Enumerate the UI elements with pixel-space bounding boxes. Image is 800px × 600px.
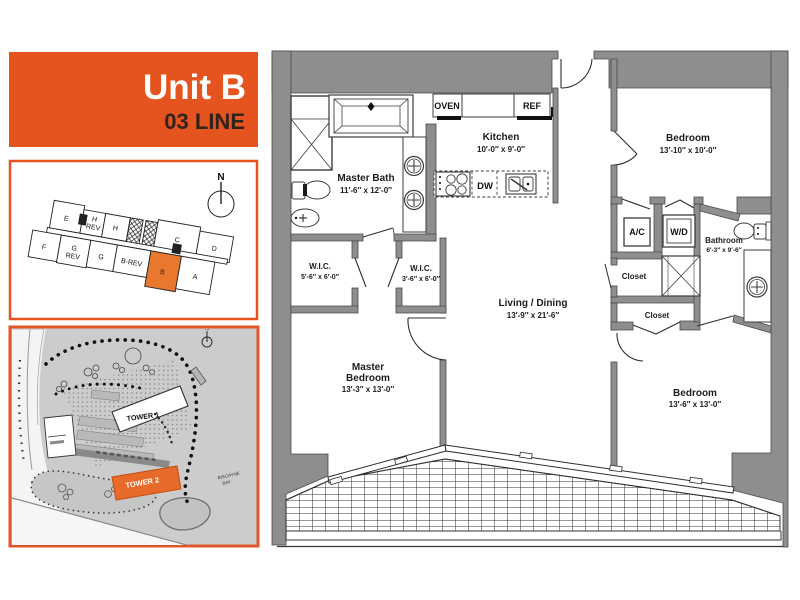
svg-text:Kitchen: Kitchen bbox=[483, 132, 520, 143]
svg-text:Unit B: Unit B bbox=[143, 68, 246, 107]
svg-text:W/D: W/D bbox=[670, 227, 688, 237]
svg-text:Master: Master bbox=[352, 362, 384, 373]
svg-text:Closet: Closet bbox=[645, 311, 670, 320]
svg-text:DW: DW bbox=[477, 181, 493, 192]
svg-text:03 LINE: 03 LINE bbox=[164, 109, 245, 134]
svg-text:Bedroom: Bedroom bbox=[673, 388, 717, 399]
svg-text:13′-3″ x 13′-0″: 13′-3″ x 13′-0″ bbox=[342, 385, 395, 394]
svg-text:13′-6″ x 13′-0″: 13′-6″ x 13′-0″ bbox=[669, 400, 722, 409]
svg-text:Bedroom: Bedroom bbox=[666, 133, 710, 144]
svg-text:REF: REF bbox=[523, 101, 542, 111]
svg-text:Master Bath: Master Bath bbox=[337, 173, 394, 184]
svg-text:13′-9″ x 21′-6″: 13′-9″ x 21′-6″ bbox=[507, 311, 560, 320]
svg-text:W.I.C.: W.I.C. bbox=[410, 264, 432, 273]
svg-text:Closet: Closet bbox=[622, 272, 647, 281]
svg-text:10′-0″ x 9′-0″: 10′-0″ x 9′-0″ bbox=[477, 145, 525, 154]
svg-text:Bedroom: Bedroom bbox=[346, 373, 390, 384]
svg-text:11′-6″ x 12′-0″: 11′-6″ x 12′-0″ bbox=[340, 186, 392, 195]
svg-text:A/C: A/C bbox=[629, 227, 645, 237]
svg-text:OVEN: OVEN bbox=[434, 101, 460, 111]
svg-text:Living / Dining: Living / Dining bbox=[499, 298, 568, 309]
svg-text:W.I.C.: W.I.C. bbox=[309, 262, 331, 271]
svg-text:13′-10″ x 10′-0″: 13′-10″ x 10′-0″ bbox=[660, 146, 717, 155]
svg-text:N: N bbox=[217, 172, 224, 183]
svg-text:6′-3″ x 9′-6″: 6′-3″ x 9′-6″ bbox=[706, 247, 741, 254]
svg-text:Bathroom: Bathroom bbox=[705, 236, 743, 245]
svg-text:5′-6″ x 6′-0″: 5′-6″ x 6′-0″ bbox=[301, 274, 340, 281]
svg-text:3′-6″ x 6′-0″: 3′-6″ x 6′-0″ bbox=[402, 276, 441, 283]
